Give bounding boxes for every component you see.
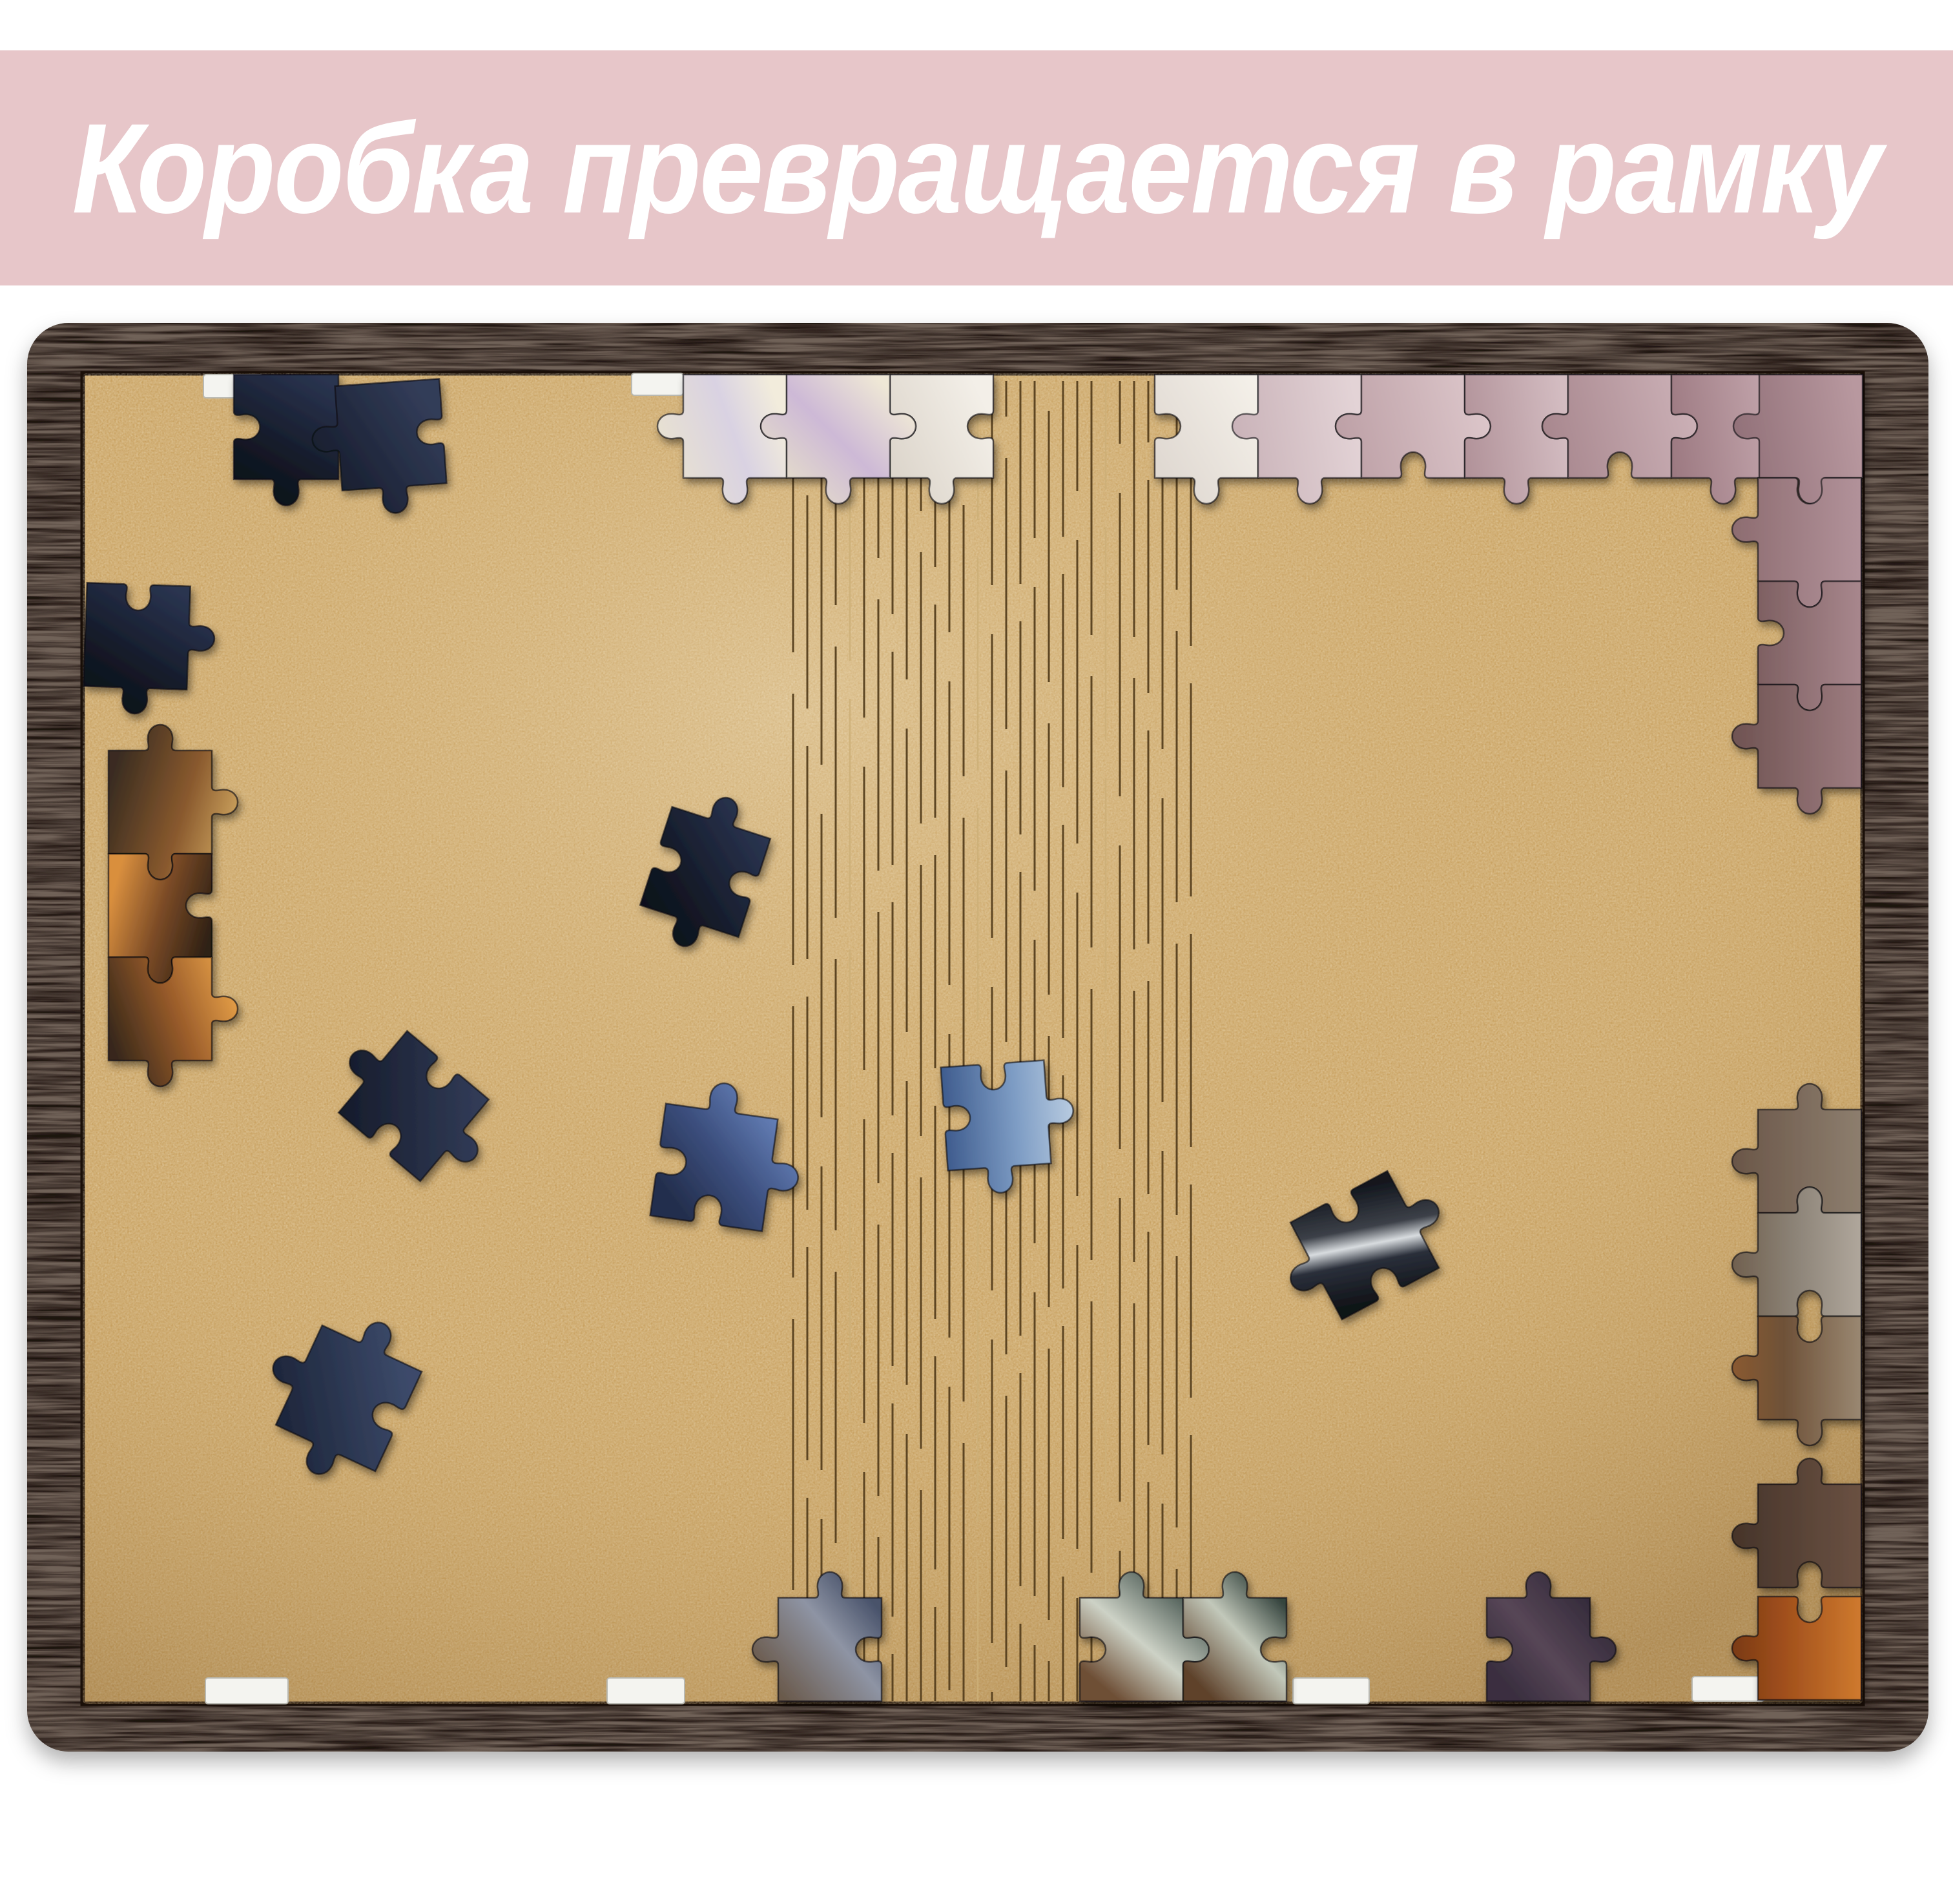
board-shading bbox=[83, 373, 1863, 1704]
product-photo bbox=[0, 0, 1953, 1904]
board-slot bbox=[607, 1678, 685, 1704]
board-slot bbox=[205, 1678, 288, 1704]
board-slot bbox=[1692, 1677, 1764, 1701]
board-slot bbox=[632, 373, 683, 395]
board bbox=[83, 373, 1863, 1704]
board-slot bbox=[1293, 1678, 1369, 1704]
